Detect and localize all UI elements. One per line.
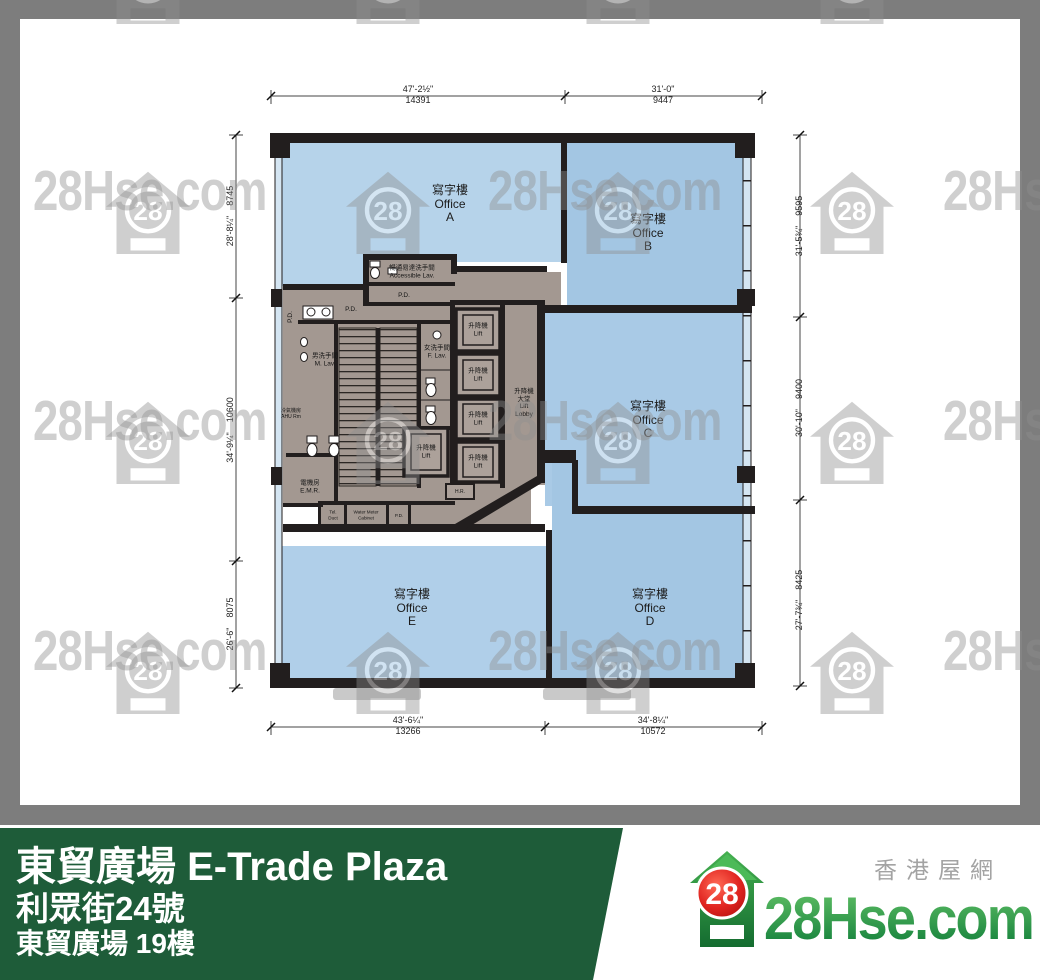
office-b-label: 寫字樓OfficeB [593,213,703,254]
f-lav-label: 女洗手間F. Lav. [424,344,450,359]
dim-left-1: 28'-8¼"8745 [225,181,236,251]
lift-label: 升降機Lift [468,322,488,337]
office-e-label: 寫字樓OfficeE [357,588,467,629]
svg-text:28: 28 [705,878,738,911]
office-d-label: 寫字樓OfficeD [595,588,705,629]
pd-label: P.D. [395,513,403,519]
water-meter-label: Water MeterCabinet [353,509,378,520]
dim-right-2: 30'-10"9400 [794,374,805,442]
office-a-label: 寫字樓OfficeA [395,184,505,225]
tel-duct-label: Tel.Duct [328,509,337,520]
lift-label: 升降機Lift [468,367,488,382]
brand-logo-text[interactable]: 28Hse.com [764,884,1033,953]
pd-label: P.D. [287,311,295,323]
brand-logo[interactable]: 28 [690,851,764,958]
dim-bottom-2: 34'-8¼"10572 [638,715,668,737]
ledge-tabs [333,688,631,700]
pd-label: P.D. [345,306,357,314]
dim-left-3: 26'-6"8075 [225,593,236,656]
dim-top-1: 47'-2½"14391 [403,84,433,106]
dim-right-1: 31'-5¾"9595 [794,191,805,261]
dim-left-2: 34'-9¼"10600 [225,392,236,467]
building-floor: 東貿廣場 19樓 [16,922,195,962]
emr-label: 電機房E.M.R. [300,479,320,494]
m-lav-label: 男洗手間M. Lav. [312,352,338,367]
dim-top-2: 31'-0"9447 [652,84,675,106]
accessible-lav-label: 暢通易達洗手間Accessible Lav. [389,264,435,279]
floorplan-page: { "watermark": { "text": "28Hse.com", "b… [0,0,1040,980]
house-logo-icon: 28 [690,851,764,953]
lift-lobby-label: 升降機大堂 LiftLobby [514,388,534,418]
brand-tagline: 香港屋網 [874,851,1002,885]
pd-label: P.D. [398,292,410,300]
dim-right-3: 27'-7¾"8425 [794,565,805,635]
lift-label: 升降機Lift [468,454,488,469]
lift-label: 升降機Lift [416,444,436,459]
office-c-label: 寫字樓OfficeC [593,400,703,441]
ahu-room-label: 冷氣機房AHU Rm [281,408,301,420]
dim-bottom-1: 43'-6¼"13266 [393,715,423,737]
lift-label: 升降機Lift [468,411,488,426]
hr-label: H.R. [455,489,465,495]
